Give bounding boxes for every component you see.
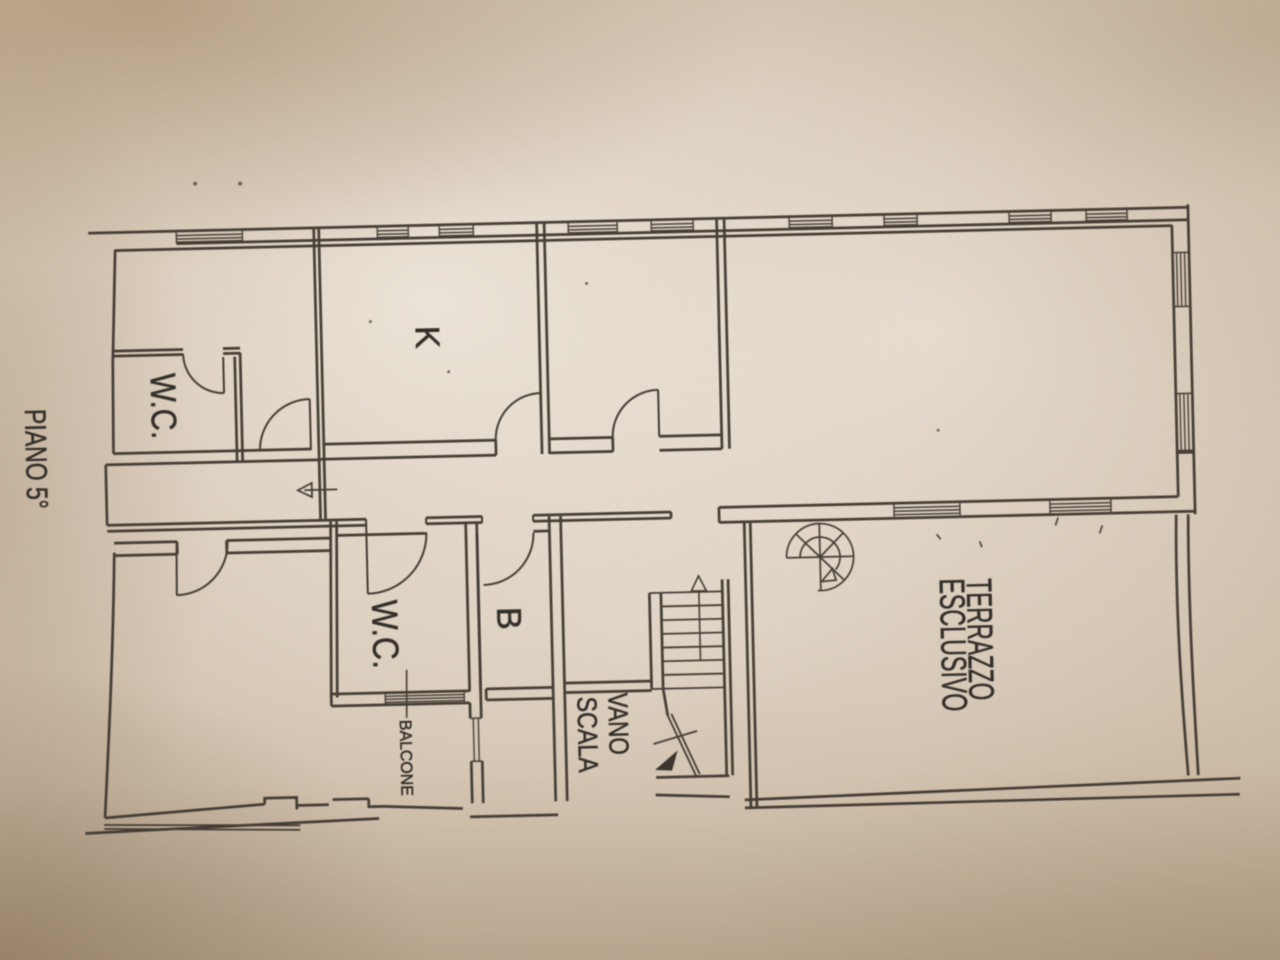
svg-text:W.C.: W.C. <box>143 373 184 440</box>
svg-text:ESCLUSIVO: ESCLUSIVO <box>932 578 974 712</box>
svg-text:VANO: VANO <box>602 692 634 755</box>
svg-text:BALCONE: BALCONE <box>396 720 417 796</box>
svg-text:PIANO 5°: PIANO 5° <box>18 409 53 510</box>
svg-text:W.C.: W.C. <box>364 599 407 669</box>
svg-text:K: K <box>408 325 447 349</box>
svg-text:B: B <box>489 607 528 631</box>
svg-text:SCALA: SCALA <box>571 696 604 773</box>
